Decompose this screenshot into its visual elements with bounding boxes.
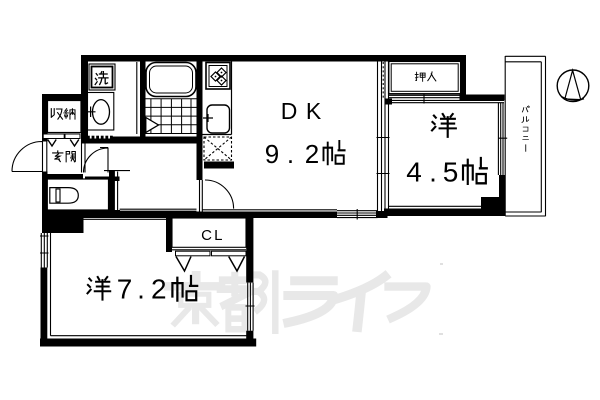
svg-text:L: L <box>214 227 222 244</box>
svg-text:2: 2 <box>305 139 319 169</box>
svg-text:5: 5 <box>443 157 459 188</box>
svg-text:9: 9 <box>265 139 279 169</box>
svg-text:.: . <box>287 139 294 169</box>
svg-text:D: D <box>281 98 298 124</box>
svg-text:.: . <box>137 274 145 305</box>
svg-text:K: K <box>306 98 322 124</box>
svg-text:7: 7 <box>117 274 133 305</box>
svg-text:C: C <box>201 227 212 244</box>
svg-text:.: . <box>429 157 437 188</box>
svg-text:4: 4 <box>406 157 422 188</box>
